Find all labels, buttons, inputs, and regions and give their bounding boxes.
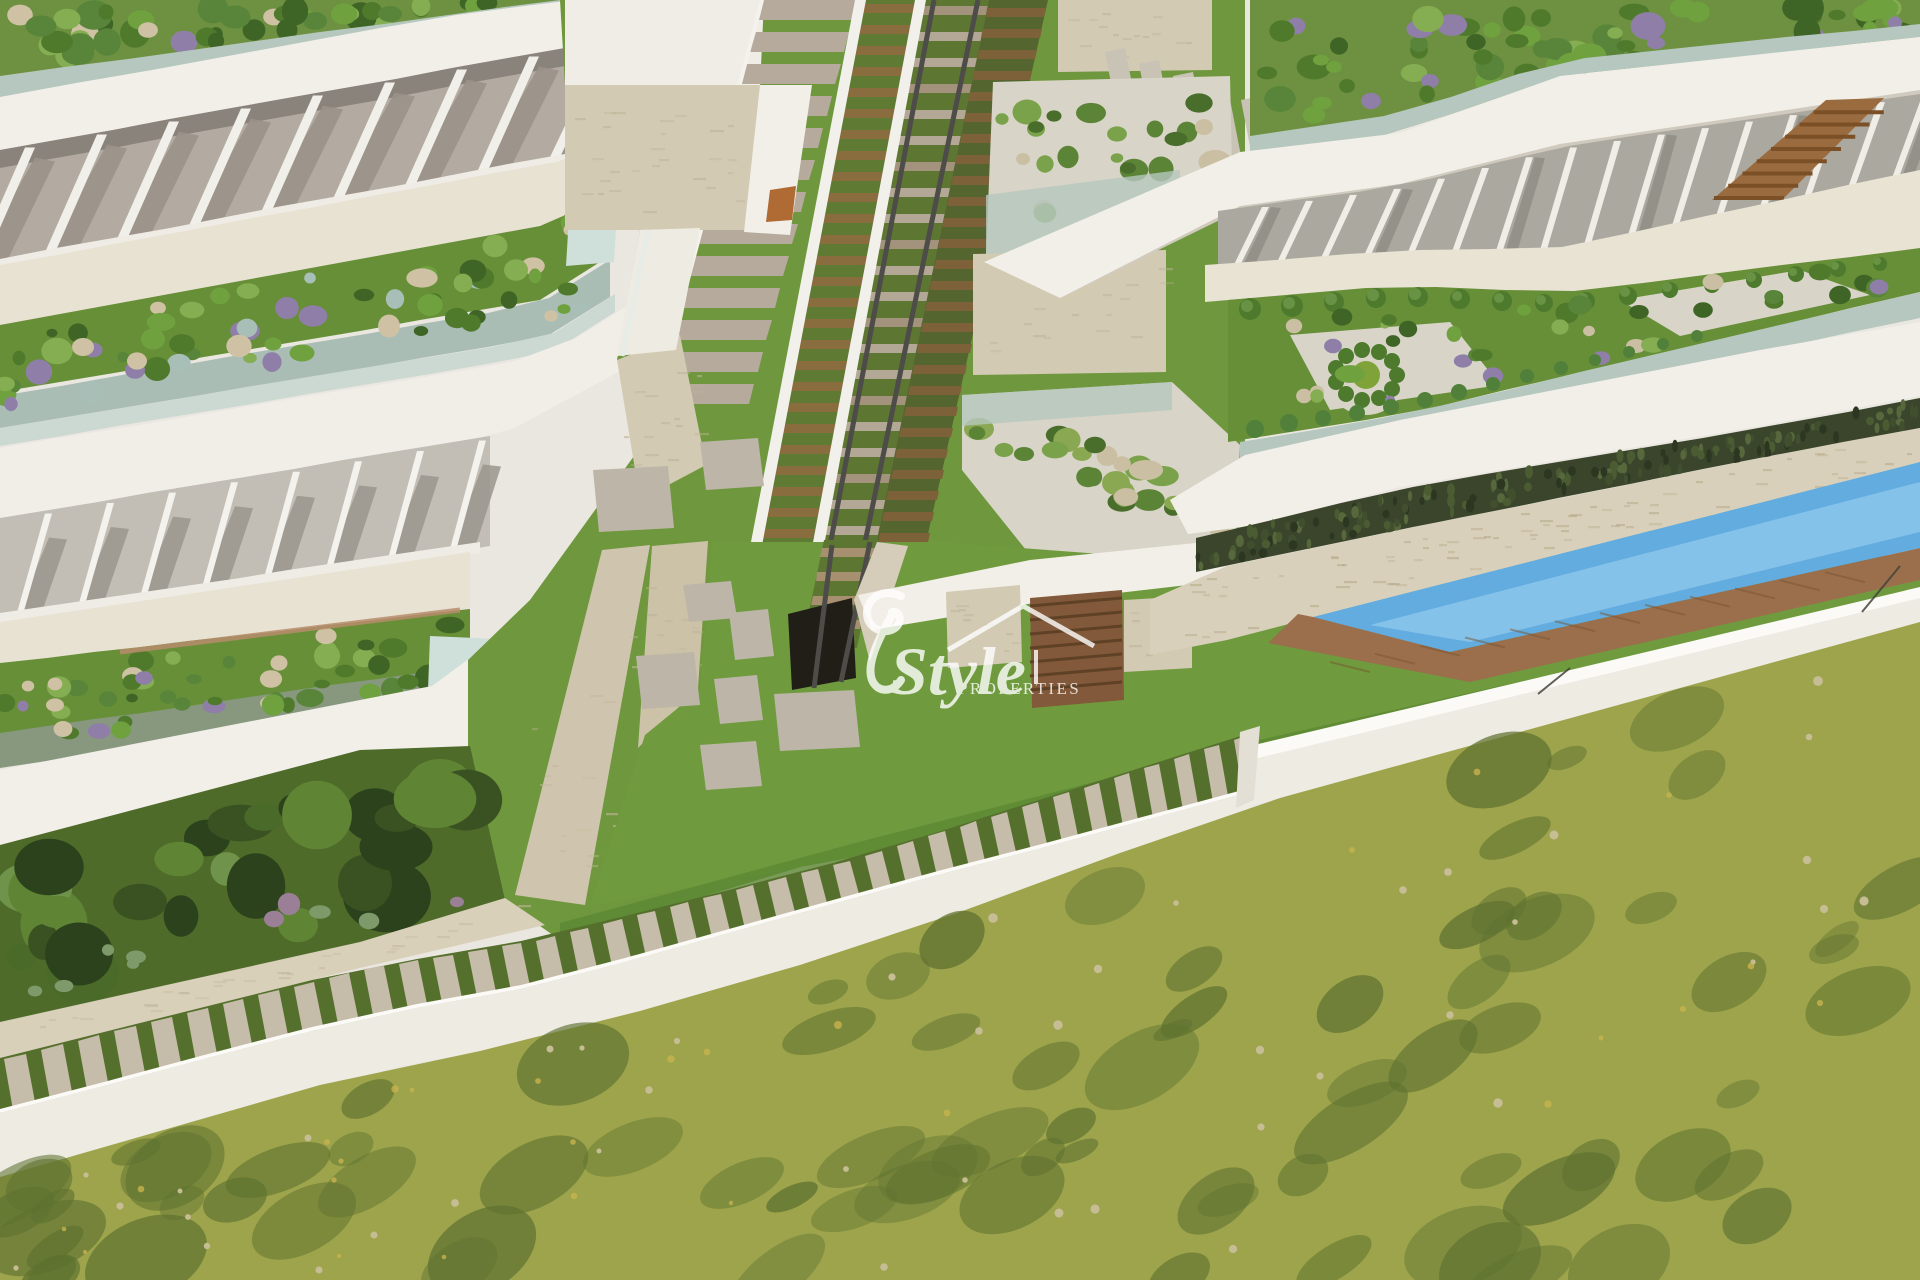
svg-text:PROPERTIES: PROPERTIES [958,679,1081,698]
